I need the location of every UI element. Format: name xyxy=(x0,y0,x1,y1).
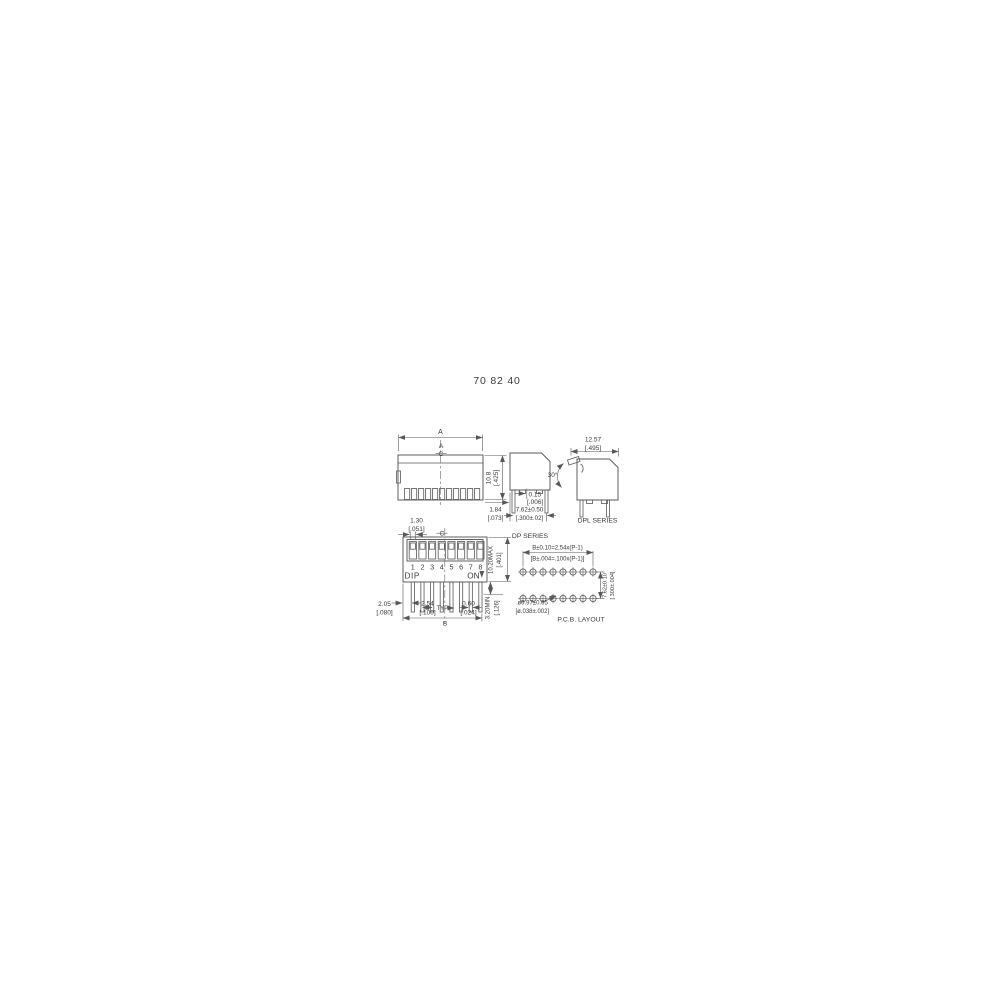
position-number: 4 xyxy=(440,563,444,572)
dim-actuator-width: 1.30 [.051] xyxy=(398,518,427,540)
dim-height-mm: 10.8 xyxy=(486,471,493,484)
actuator-tooth xyxy=(454,489,459,500)
dim-actuator-width-in: [.051] xyxy=(408,526,424,533)
side-view-teeth xyxy=(405,489,480,500)
dim-pitch-mm: 2.54 xyxy=(421,601,434,608)
switch-actuator xyxy=(478,543,483,549)
dim-pin-offset-in: [.073] xyxy=(488,515,504,522)
dim-pitch-typ: TYP xyxy=(437,606,449,612)
dim-pin-length-mm: 3.20MIN xyxy=(486,597,492,620)
actuator-tooth xyxy=(405,489,410,500)
dim-pad-span: B±0.10=2.54x(P-1) [B±.004=.100x(P-1)] xyxy=(523,546,593,567)
dim-row-spacing: 7.62±0.10 [.300±.004] xyxy=(596,571,616,599)
dp-body xyxy=(510,453,550,490)
dim-dpl-width-mm: 12.57 xyxy=(585,437,602,444)
solder-pad xyxy=(548,594,558,604)
actuator-angle-label2: 30° xyxy=(548,471,558,479)
switch-actuator xyxy=(410,543,415,549)
dp-series-label: DP SERIES xyxy=(512,533,549,540)
dp-series-drawing: 0.15 [.006] 1.84 [.073] 7.62±0.50 [.300±… xyxy=(485,453,556,540)
dim-a-inner-label: A xyxy=(439,443,444,450)
dim-body-width: 10.20MAX [.401] xyxy=(489,538,512,582)
dim-row-spacing-mm: 7.62±0.10 xyxy=(603,573,609,598)
dim-pin-offset: 1.84 [.073] xyxy=(485,503,509,523)
dim-span-b-label: B xyxy=(443,621,447,628)
solder-pad xyxy=(558,567,568,577)
position-number: 8 xyxy=(478,563,482,572)
on-direction: ON xyxy=(467,571,482,581)
dim-dpl-width-in: [.495] xyxy=(585,445,601,452)
dim-pin-offset-mm: 1.84 xyxy=(489,507,502,514)
pcb-layout-drawing: B±0.10=2.54x(P-1) [B±.004=.100x(P-1)] 7.… xyxy=(516,546,617,624)
solder-pad xyxy=(518,567,528,577)
dpl-body xyxy=(577,459,618,500)
switch-actuator xyxy=(439,543,444,549)
top-view-centerline-callout: C xyxy=(437,531,448,538)
pad-span-formula-in: [B±.004=.100x(P-1)] xyxy=(531,557,585,563)
switch-pin xyxy=(411,582,414,612)
solder-pads xyxy=(518,567,598,603)
position-number: 2 xyxy=(420,563,424,572)
dpl-actuator-lever xyxy=(568,457,581,466)
centerline-symbol: C xyxy=(439,451,444,458)
dim-body-width-mm: 10.20MAX xyxy=(489,546,495,574)
switch-pin xyxy=(450,582,453,612)
dpl-pin-right xyxy=(607,500,610,517)
dim-height-in: [.425] xyxy=(493,470,500,486)
part-number-title: 70 82 40 xyxy=(473,375,520,387)
dim-pin-spacing-in: [.300±.02] xyxy=(516,515,544,522)
solder-pad xyxy=(538,567,548,577)
switch-actuators xyxy=(410,543,483,549)
position-number: 5 xyxy=(449,563,453,572)
dim-pin-spacing-mm: 7.62±0.50 xyxy=(516,507,544,514)
solder-pad xyxy=(528,567,538,577)
actuator-tooth xyxy=(468,489,473,500)
dim-pitch: 2.54 [.100] TYP xyxy=(419,601,454,617)
position-number: 7 xyxy=(469,563,473,572)
dim-a-label: A xyxy=(438,429,443,436)
dim-height: 10.8 [.425] xyxy=(485,456,507,500)
actuator-tooth xyxy=(447,489,452,500)
dip-label: DIP xyxy=(405,572,420,581)
on-label: ON xyxy=(467,572,479,581)
pad-span-formula-mm: B±0.10=2.54x(P-1) xyxy=(532,546,583,552)
centerline-symbol: C xyxy=(440,531,445,538)
dpl-pin-left xyxy=(580,500,583,517)
actuator-tooth xyxy=(461,489,466,500)
switch-actuator xyxy=(430,543,435,549)
dip-switch-technical-drawing: 70 82 40 A A C 10.8 [.425] xyxy=(0,0,1000,1000)
dim-pin-length-in: [.126] xyxy=(495,600,501,615)
switch-actuator xyxy=(459,543,464,549)
switch-pin xyxy=(469,582,472,612)
dim-pin-width-mm: 0.60 xyxy=(462,601,475,608)
switch-actuator xyxy=(449,543,454,549)
hole-diameter-in: [ø.038±.002] xyxy=(516,609,550,615)
pcb-layout-label: P.C.B. LAYOUT xyxy=(557,617,604,624)
solder-pad xyxy=(578,567,588,577)
dim-end-offset-in: [.080] xyxy=(376,610,392,617)
dim-dpl-width: 12.57 [.495] xyxy=(571,437,618,457)
dim-pin-width-in: [.024] xyxy=(460,610,476,617)
position-number: 1 xyxy=(411,563,415,572)
side-view-notch xyxy=(397,471,401,483)
centerline-callout: A C xyxy=(436,443,447,458)
dpl-series-drawing: 30° 12.57 [.495] DPL SERIES xyxy=(548,437,619,525)
solder-pad xyxy=(558,594,568,604)
datasheet-page: 70 82 40 A A C 10.8 [.425] xyxy=(0,0,1000,1000)
solder-pad xyxy=(548,567,558,577)
actuator-tooth xyxy=(433,489,438,500)
dim-pin-length: 3.20MIN [.126] xyxy=(484,582,504,619)
position-number: 3 xyxy=(430,563,434,572)
actuator-tooth xyxy=(475,489,480,500)
switch-actuator xyxy=(420,543,425,549)
position-number: 6 xyxy=(459,563,463,572)
side-view-drawing: A A C 10.8 [.425] xyxy=(397,429,507,505)
dim-standoff: 0.15 [.006] xyxy=(515,489,544,507)
dim-end-offset-mm: 2.05 xyxy=(378,601,391,608)
dim-standoff-in: [.006] xyxy=(527,499,543,506)
top-view-drawing: 12345678 DIP ON C 1.30 [.051] 10.20MAX [… xyxy=(376,518,511,628)
position-numbers: 12345678 xyxy=(411,563,483,572)
actuator-tooth xyxy=(419,489,424,500)
dp-pin-right xyxy=(545,490,548,513)
dim-actuator-width-mm: 1.30 xyxy=(410,518,423,525)
dim-body-width-in: [.401] xyxy=(497,552,503,567)
dim-pitch-in: [.100] xyxy=(419,610,435,617)
dpl-series-label: DPL SERIES xyxy=(578,518,618,525)
switch-actuator xyxy=(468,543,473,549)
actuator-tooth xyxy=(426,489,431,500)
dim-row-spacing-in: [.300±.004] xyxy=(610,571,616,599)
switch-slots xyxy=(409,542,484,560)
dim-standoff-mm: 0.15 xyxy=(529,492,542,499)
actuator-tooth xyxy=(412,489,417,500)
solder-pad xyxy=(568,567,578,577)
solder-pad xyxy=(568,594,578,604)
solder-pad xyxy=(578,594,588,604)
hole-diameter-mm: ø0.97±0.05 xyxy=(518,601,549,607)
